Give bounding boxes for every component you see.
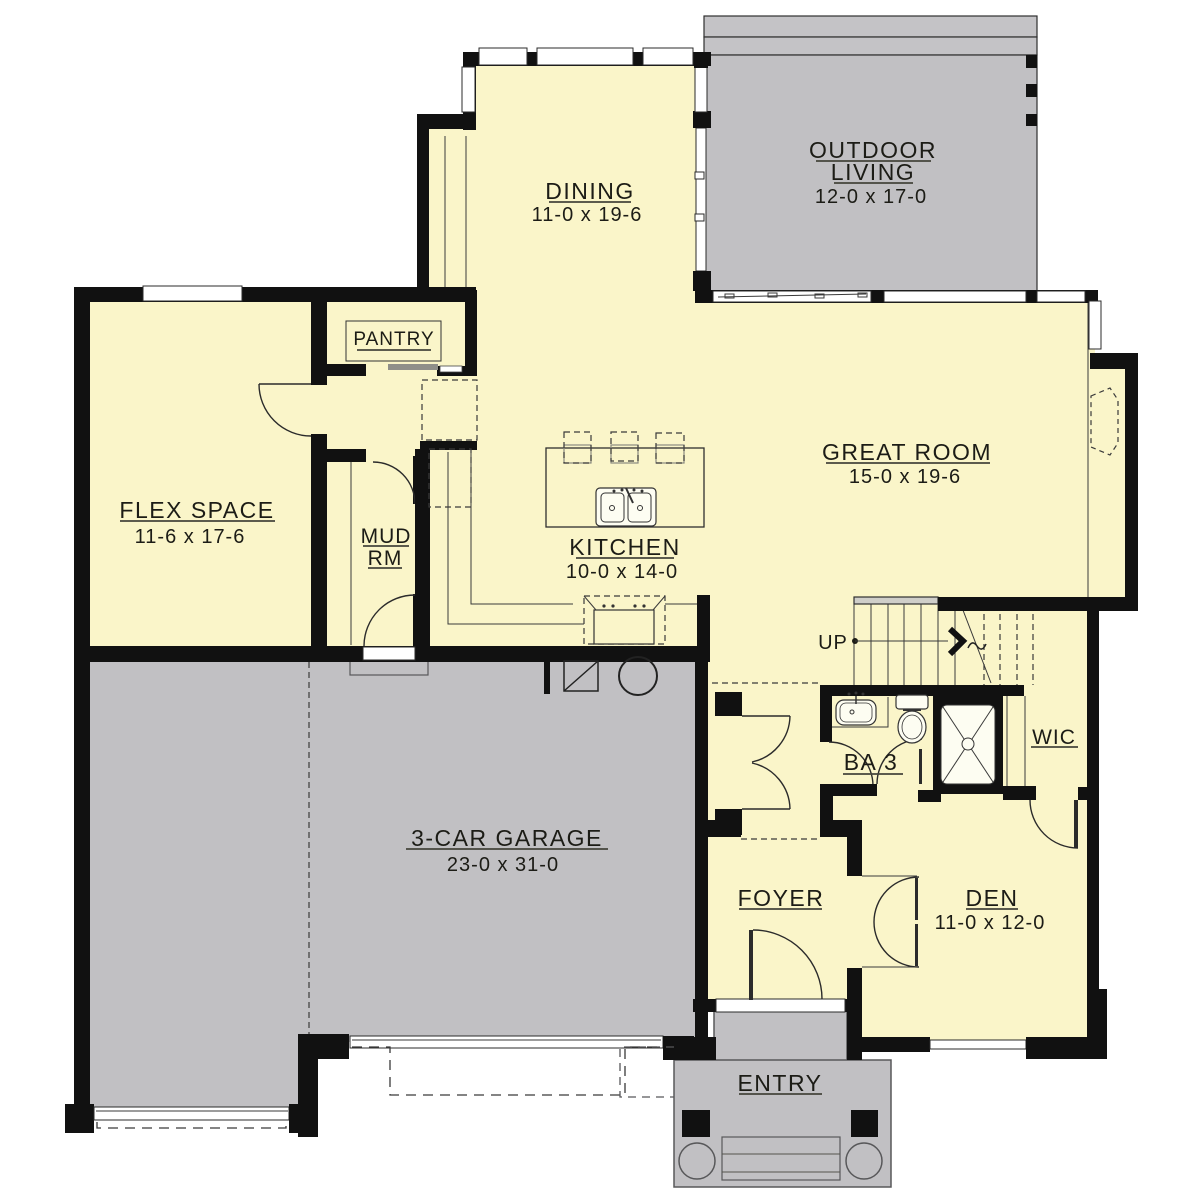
svg-text:11-6 x 17-6: 11-6 x 17-6 [135,526,246,548]
svg-text:ENTRY: ENTRY [737,1070,822,1096]
svg-text:UP: UP [818,632,848,654]
svg-text:BA 3: BA 3 [844,749,899,775]
svg-text:WIC: WIC [1032,726,1076,749]
svg-text:FLEX SPACE: FLEX SPACE [119,497,274,523]
svg-text:15-0 x 19-6: 15-0 x 19-6 [849,466,961,488]
svg-text:MUD: MUD [361,525,412,548]
svg-text:DEN: DEN [965,885,1018,911]
svg-text:GREAT ROOM: GREAT ROOM [822,439,992,465]
svg-text:DINING: DINING [545,178,635,204]
svg-text:11-0 x 19-6: 11-0 x 19-6 [532,204,643,226]
svg-text:10-0 x 14-0: 10-0 x 14-0 [566,561,678,583]
svg-text:23-0 x 31-0: 23-0 x 31-0 [447,854,559,876]
svg-text:3-CAR GARAGE: 3-CAR GARAGE [411,825,603,851]
svg-text:RM: RM [368,547,403,570]
svg-text:FOYER: FOYER [738,885,825,911]
svg-text:11-0 x 12-0: 11-0 x 12-0 [935,912,1046,934]
svg-text:LIVING: LIVING [831,159,915,185]
svg-text:12-0 x 17-0: 12-0 x 17-0 [815,186,927,208]
svg-text:PANTRY: PANTRY [353,329,434,350]
svg-text:KITCHEN: KITCHEN [569,534,680,560]
